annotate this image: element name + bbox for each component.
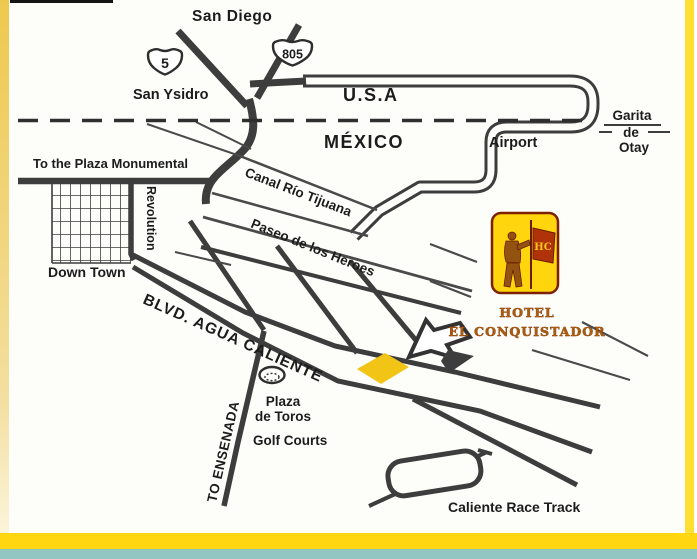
hotel-name-line2: EL CONQUISTADOR	[448, 324, 605, 339]
label-golf-courts: Golf Courts	[253, 433, 327, 448]
label-usa: U.S.A	[343, 85, 399, 105]
label-revolution: Revolution	[144, 186, 158, 251]
label-garita-line3: Otay	[619, 140, 650, 155]
hotel-name-line1: HOTEL	[499, 305, 554, 320]
label-plaza-monumental: To the Plaza Monumental	[33, 156, 188, 171]
shield-805-number: 805	[282, 48, 303, 62]
right-border-strip	[685, 0, 694, 533]
downtown-grid	[52, 184, 131, 263]
left-border-strip	[0, 0, 9, 533]
road-revolution	[131, 178, 134, 260]
label-san-ysidro: San Ysidro	[133, 87, 209, 103]
label-mexico: MÉXICO	[324, 131, 404, 152]
bottom-border-strip-teal	[0, 549, 697, 559]
label-plaza-toros-line2: de Toros	[255, 409, 311, 424]
label-down-town: Down Town	[48, 264, 126, 280]
bottom-border-strip-yellow	[0, 533, 697, 549]
bullring-icon	[260, 367, 285, 383]
label-san-diego: San Diego	[192, 8, 272, 25]
label-plaza-toros-line1: Plaza	[266, 394, 301, 409]
top-edge-sliver	[10, 0, 113, 3]
flag-monogram: HC	[534, 242, 551, 253]
hotel-logo-icon: HC	[492, 213, 558, 293]
label-airport: Airport	[489, 135, 538, 151]
tijuana-directions-map: 5 805 HC San Diego San Ysidro U.S.A MÉXI…	[0, 0, 697, 559]
label-garita-line2: de	[623, 125, 639, 140]
road-junction-stub	[250, 81, 306, 84]
shield-5-number: 5	[161, 55, 169, 71]
label-garita-line1: Garita	[612, 108, 652, 123]
label-race-track: Caliente Race Track	[448, 499, 581, 515]
